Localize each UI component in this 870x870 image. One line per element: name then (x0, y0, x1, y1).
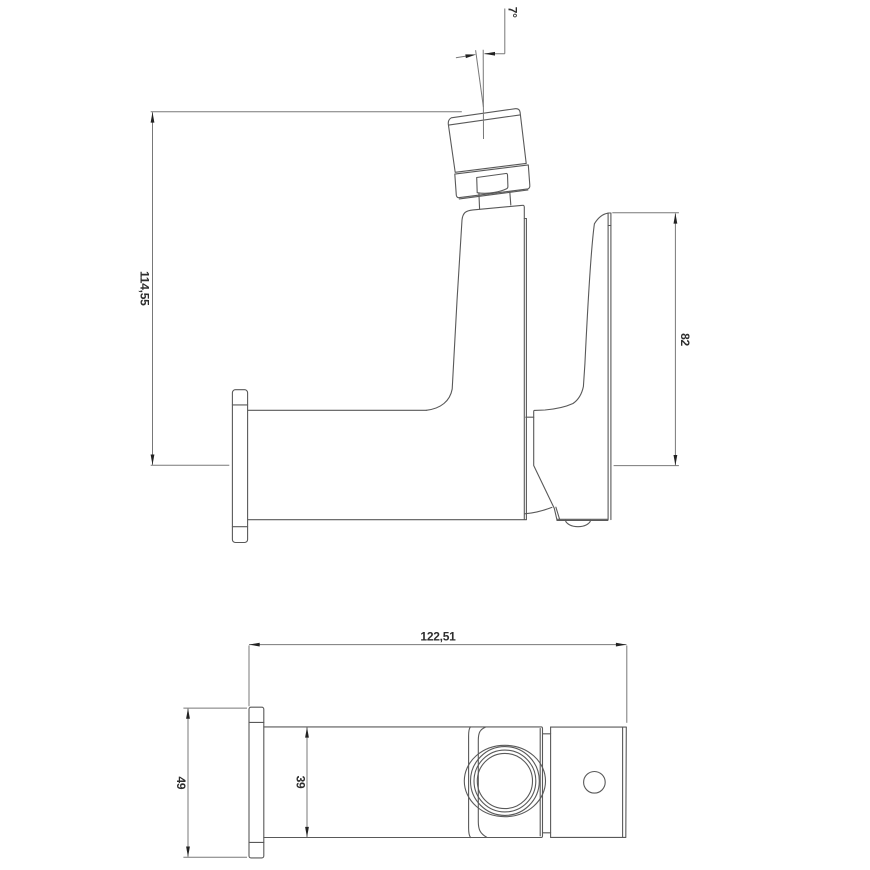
svg-text:82: 82 (678, 333, 692, 346)
svg-text:49: 49 (174, 776, 188, 789)
svg-text:114,55: 114,55 (137, 271, 151, 306)
svg-text:122,51: 122,51 (420, 630, 456, 644)
svg-text:39: 39 (294, 776, 308, 789)
svg-text:7°: 7° (506, 7, 520, 18)
